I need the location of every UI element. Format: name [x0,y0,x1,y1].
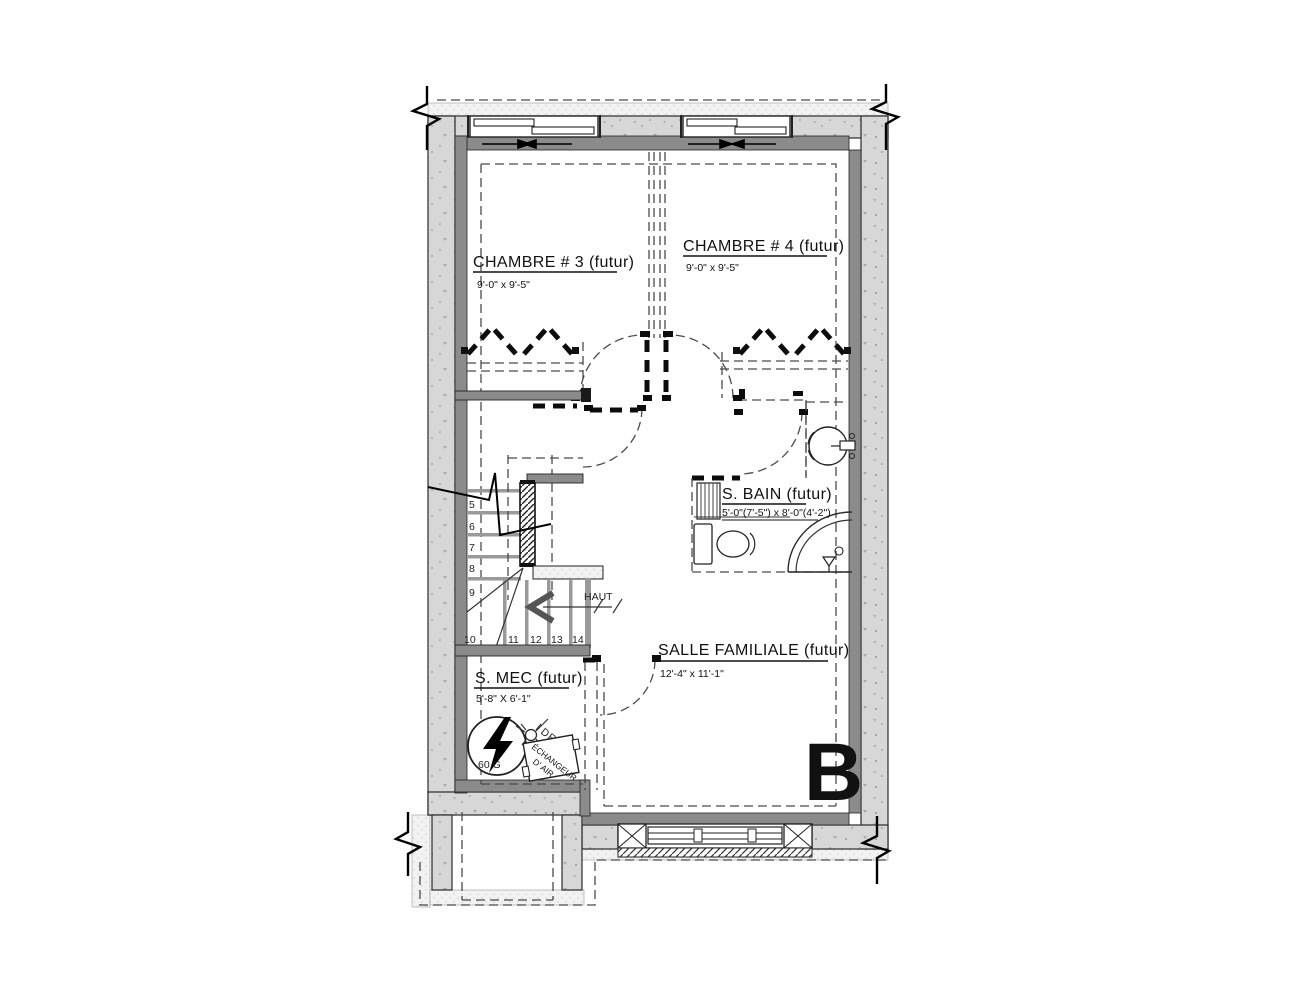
future-partitions [533,400,849,660]
door-arc-smec [600,660,655,715]
salle-familiale-dims: 12'-4" x 11'-1" [660,668,724,680]
window-sill-hatch [618,848,812,857]
chambre3-label: CHAMBRE # 3 (futur) [473,254,634,271]
stair-enclosure-wall [455,391,585,400]
chambre3-dims: 9'-0" x 9'-5" [477,279,530,291]
window-top-right [681,115,792,138]
water-heater-label: 60 G [478,759,501,771]
floor-plan-page: HAUT 5 6 7 8 9 10 11 12 13 14 [0,0,1300,1005]
salle-mec-label: S. MEC (futur) [475,670,583,687]
door-arc-chambre4 [670,335,733,398]
chambre4-label: CHAMBRE # 4 (futur) [683,238,844,255]
salle-familiale-label: SALLE FAMILIALE (futur) [658,642,850,659]
window-well-left-leg [432,815,452,890]
stair-number: 8 [469,563,475,575]
window-top-left [468,115,600,138]
stair-direction-arrow: HAUT [530,591,622,621]
salle-bain-dims: 5'-0"(7'-5") x 8'-0"(4'-2") [722,507,831,519]
stair-number: 12 [530,634,542,646]
center-partition [647,152,666,396]
stair-number: 9 [469,587,475,599]
toilet-icon [694,524,755,564]
closet-chambre4 [720,327,851,398]
stair-number: 10 [464,634,476,646]
stair-number: 14 [572,634,584,646]
floor-plan-drawing: HAUT 5 6 7 8 9 10 11 12 13 14 [0,0,1300,1005]
stair-number: 11 [508,634,519,646]
stair-number: 5 [469,499,475,511]
water-heater-icon: 60 G [468,717,526,775]
stair-number: 13 [551,634,563,646]
stair-number: 7 [469,542,475,554]
door-arc-bathroom [740,412,802,474]
unit-letter: B [804,727,863,818]
stair-wall-hatched [520,483,535,566]
salle-bain-label: S. BAIN (futur) [722,486,832,503]
closet-chambre3 [461,327,583,390]
window-bottom [618,824,812,857]
chambre4-dims: 9'-0" x 9'-5" [686,262,739,274]
salle-mec-dims: 5'-8" X 6'-1" [476,693,531,705]
door-arc-hall [583,408,642,467]
sink-icon [806,402,855,478]
window-well-right-leg [562,815,582,890]
stair-number: 6 [469,521,475,533]
haut-label: HAUT [584,591,613,603]
shower-icon [788,512,852,572]
